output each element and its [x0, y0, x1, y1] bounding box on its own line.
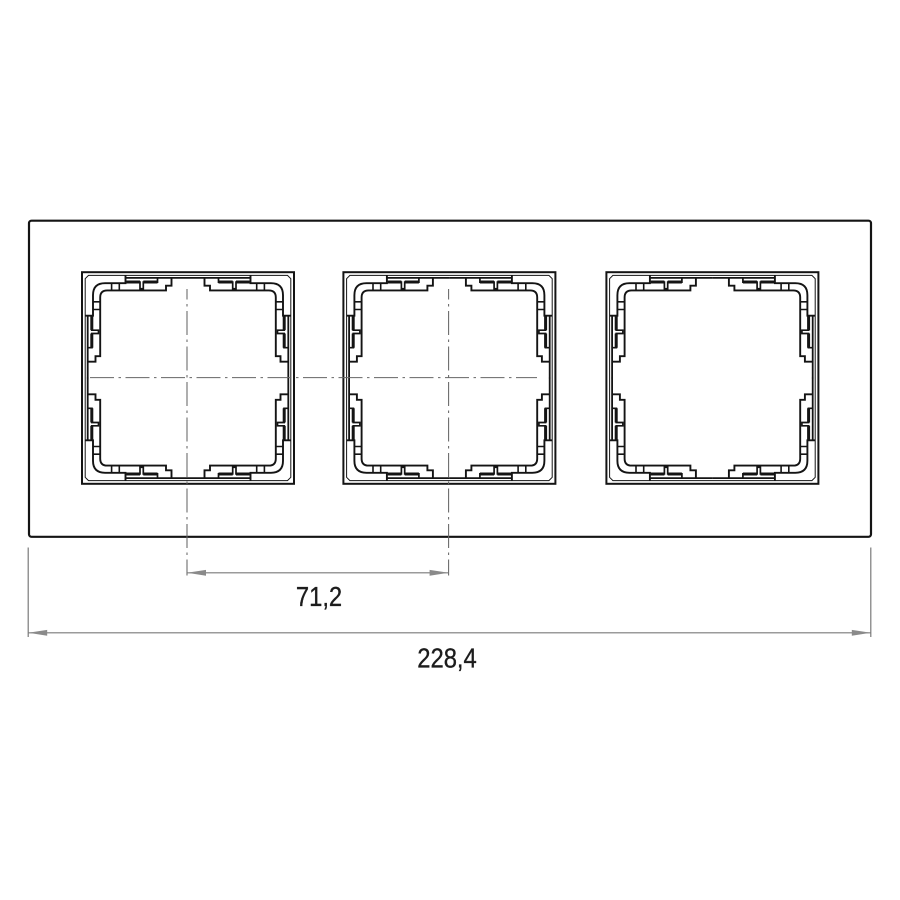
svg-text:228,4: 228,4 — [417, 642, 477, 674]
svg-text:71,2: 71,2 — [296, 580, 342, 612]
